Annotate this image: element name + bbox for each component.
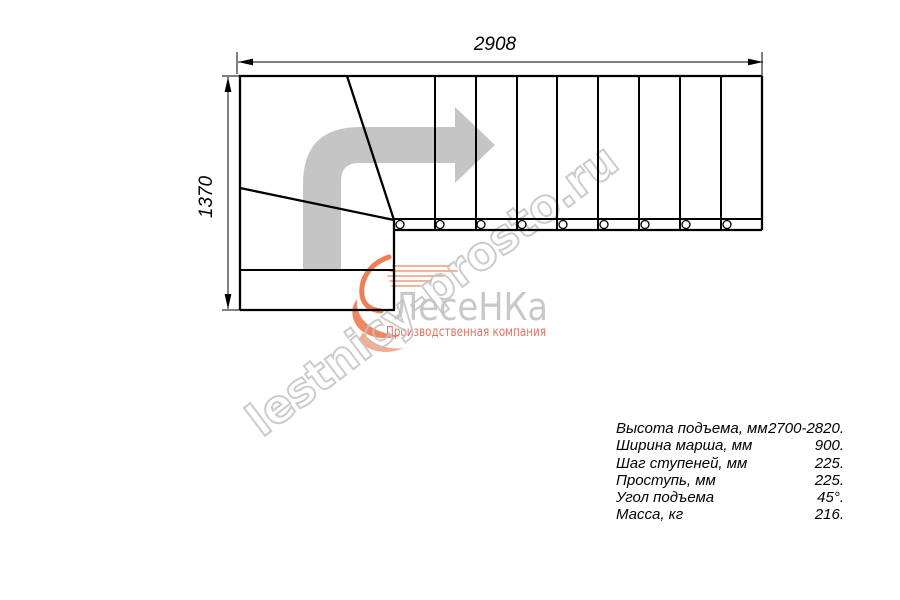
spec-value: 900.: [815, 437, 844, 454]
dimension-depth-label: 1370: [196, 167, 218, 227]
spec-value: 225.: [815, 455, 844, 472]
dimension-width-label: 2908: [452, 34, 538, 56]
spec-row-angle: Угол подъема 45°.: [616, 489, 844, 506]
site-watermark-text: lestnicy-prosto.ru: [236, 133, 628, 447]
spec-label: Ширина марша, мм: [616, 437, 752, 454]
spec-label: Высота подъема, мм: [616, 420, 768, 437]
spec-label: Проступь, мм: [616, 472, 716, 489]
staircase-drawing-page: ЛесеНКа Производственная компания lestni…: [0, 0, 900, 600]
spec-value: 45°.: [817, 489, 844, 506]
spec-row-mass: Масса, кг 216.: [616, 506, 844, 523]
spec-value: 2700-2820.: [768, 420, 844, 437]
specs-table: Высота подъема, мм 2700-2820. Ширина мар…: [616, 420, 844, 524]
spec-row-tread: Проступь, мм 225.: [616, 472, 844, 489]
spec-value: 216.: [815, 506, 844, 523]
spec-label: Масса, кг: [616, 506, 683, 523]
spec-row-height: Высота подъема, мм 2700-2820.: [616, 420, 844, 437]
spec-label: Шаг ступеней, мм: [616, 455, 747, 472]
spec-label: Угол подъема: [616, 489, 714, 506]
spec-row-march-width: Ширина марша, мм 900.: [616, 437, 844, 454]
spec-row-step-pitch: Шаг ступеней, мм 225.: [616, 455, 844, 472]
spec-value: 225.: [815, 472, 844, 489]
